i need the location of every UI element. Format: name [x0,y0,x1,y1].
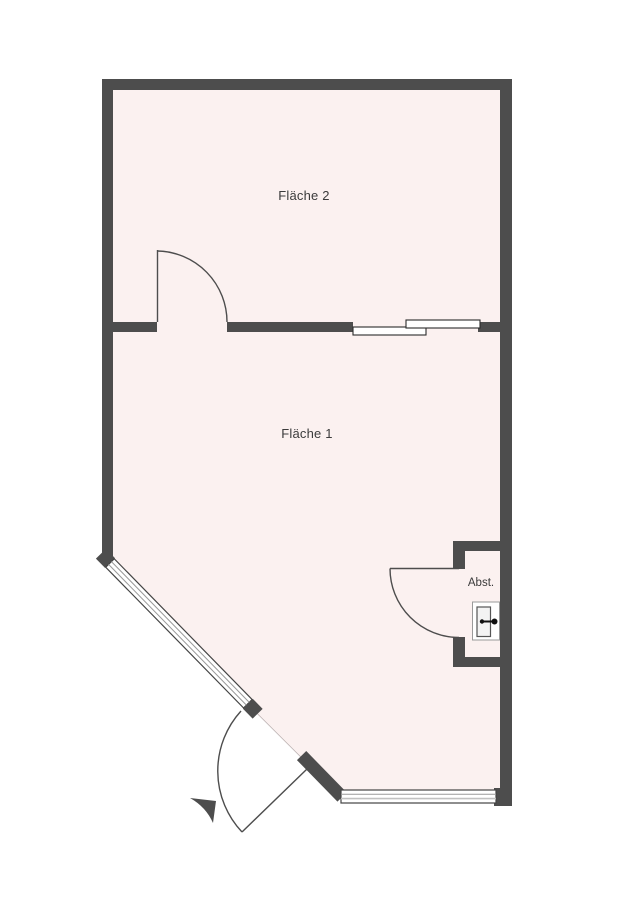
floor-plan-page: Fläche 2 Fläche 1 Abst. [0,0,636,900]
sliding-door-panel-upper [406,320,480,328]
door-entrance-swing-arc [218,711,242,832]
wall-divider-left [113,322,157,332]
wall-closet-bottom [453,657,500,667]
wall-top [102,79,512,90]
room-label-flaeche-2: Fläche 2 [278,188,329,203]
door-entrance-leaf [242,769,307,832]
wall-closet-jamb-top [453,541,465,569]
wall-bottom-corner [494,788,512,806]
floor-plan-drawing: Fläche 2 Fläche 1 Abst. [0,0,636,900]
room-label-flaeche-1: Fläche 1 [281,426,332,441]
wall-right [500,79,512,806]
wall-left [102,79,113,561]
wall-divider-middle [227,322,353,332]
wall-divider-right [478,322,500,332]
direction-triangle-marker [190,798,216,823]
boiler-fixture [473,602,500,640]
room-label-abst: Abst. [468,577,494,589]
boiler-symbol-dot-right [492,619,498,625]
boiler-symbol-dot-left [480,619,484,623]
bottom-window [341,790,496,803]
bottom-window-glazing [341,790,496,803]
